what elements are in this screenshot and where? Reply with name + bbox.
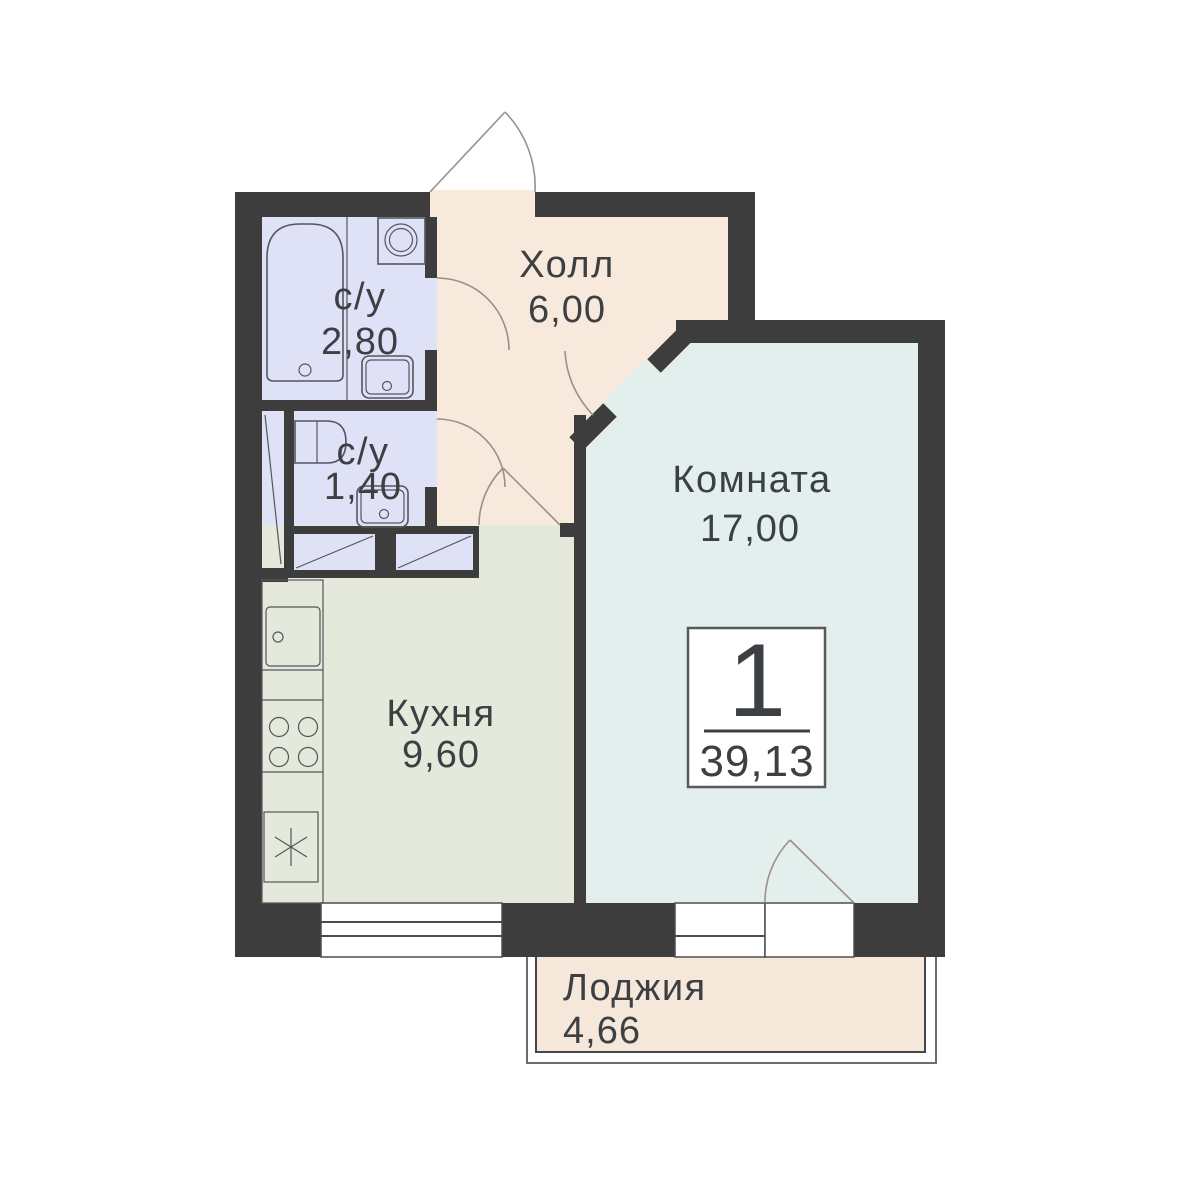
hall-label: Холл xyxy=(519,244,615,286)
entrance-opening xyxy=(430,190,535,219)
wall-top-left xyxy=(235,192,430,217)
loggia-area: 4,66 xyxy=(563,1010,641,1052)
wall-kitchen-stub xyxy=(560,523,586,537)
hall-area: 6,00 xyxy=(528,289,606,331)
wall-bathrooms-divider xyxy=(262,400,437,411)
wall-bottom-3 xyxy=(854,903,945,957)
bathroom-small-area: 1,40 xyxy=(324,466,402,508)
kitchen-area: 9,60 xyxy=(402,734,480,776)
balcony-door-panel xyxy=(765,903,854,957)
wall-bathroom-right-a xyxy=(425,217,437,278)
wall-room-top xyxy=(676,320,945,343)
room-window xyxy=(675,903,765,957)
wall-right xyxy=(918,343,945,957)
wall-bathroom-right-b xyxy=(425,350,437,411)
wall-top-right xyxy=(535,192,755,217)
kitchen-label: Кухня xyxy=(386,693,495,735)
wall-kitchen-room xyxy=(574,415,586,903)
bathroom-big-label: с/у xyxy=(333,276,386,318)
entrance-door-leaf xyxy=(430,112,505,192)
bathroom-big-area: 2,80 xyxy=(321,321,399,363)
loggia-label: Лоджия xyxy=(563,967,707,1009)
living-room-label: Комната xyxy=(672,459,831,501)
entrance-door-arc xyxy=(505,112,535,192)
wall-left xyxy=(235,192,262,957)
kitchen-window xyxy=(321,903,502,957)
bathroom-small-door-opening xyxy=(425,411,437,487)
floor-plan-svg: Холл 6,00 с/у 2,80 с/у 1,40 Кухня 9,60 К… xyxy=(0,0,1181,1181)
wall-bottom-1 xyxy=(235,903,321,957)
living-room-area: 17,00 xyxy=(700,508,800,550)
bathroom-big-door-opening xyxy=(425,278,437,350)
badge-rooms-count: 1 xyxy=(728,623,786,739)
floor-plan-canvas: Холл 6,00 с/у 2,80 с/у 1,40 Кухня 9,60 К… xyxy=(0,0,1181,1181)
badge-total-area: 39,13 xyxy=(699,737,814,786)
apartment-badge: 1 39,13 xyxy=(688,623,825,787)
wall-bottom-2 xyxy=(502,903,675,957)
